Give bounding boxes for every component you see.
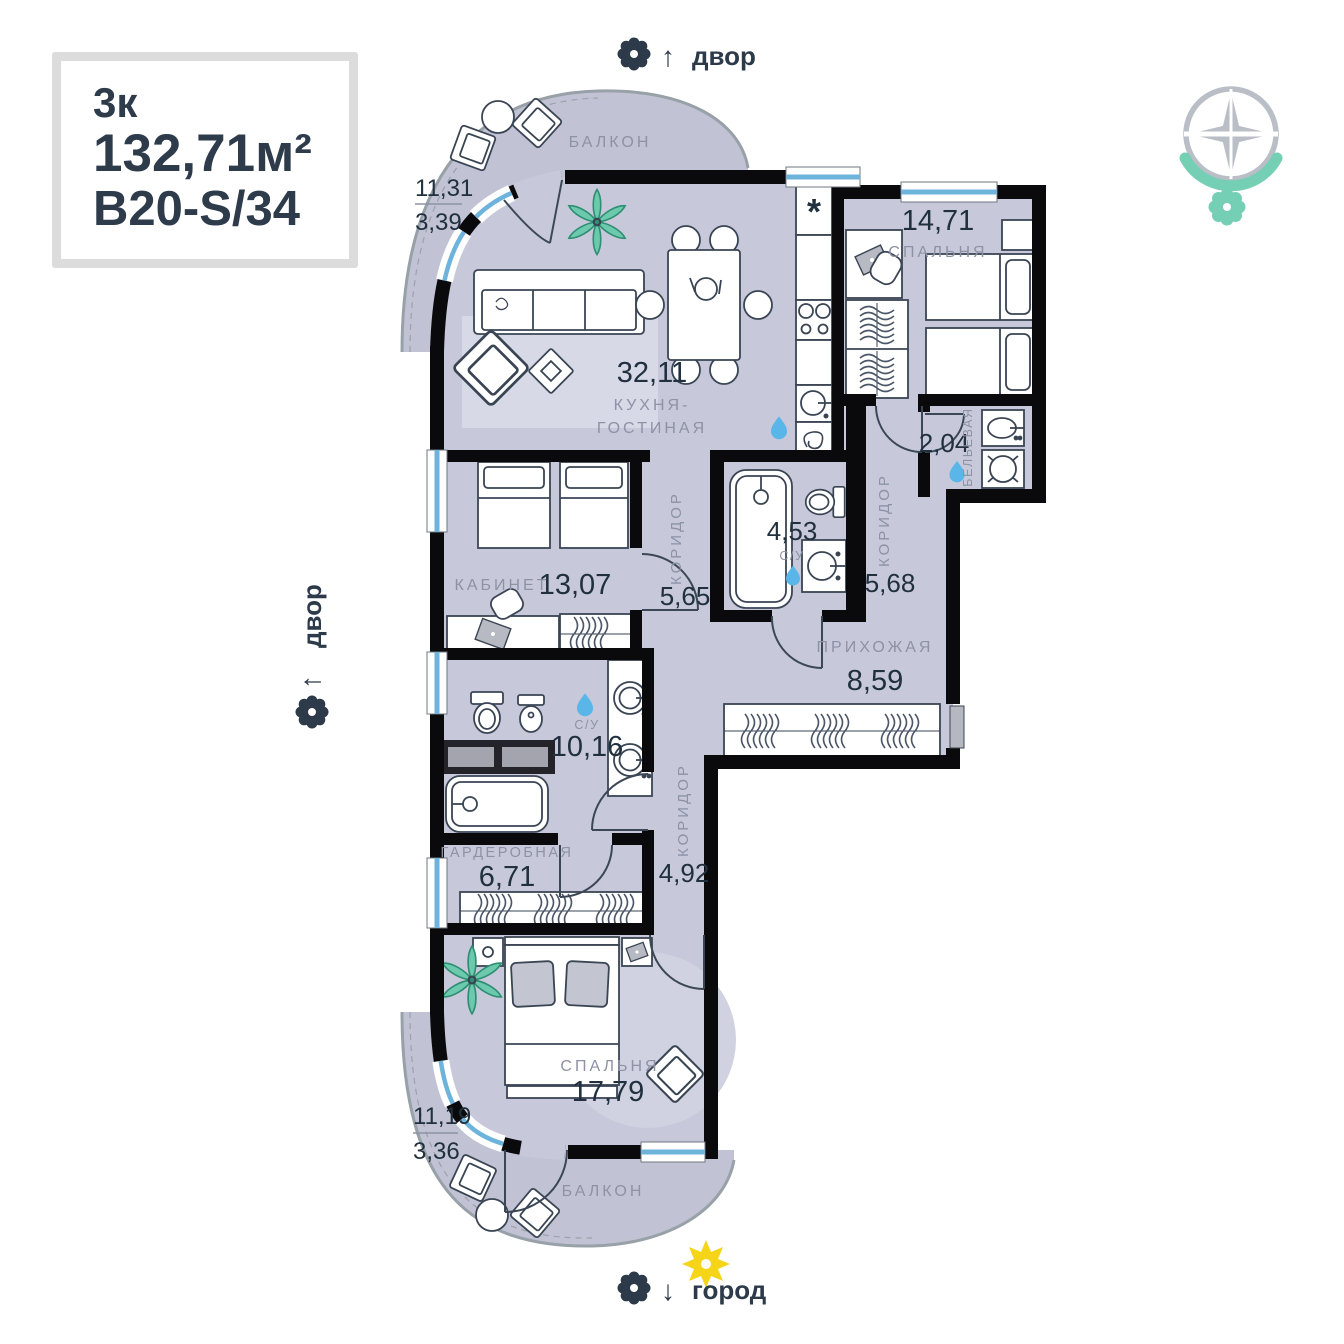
arrow-left-icon: ↑	[295, 675, 326, 689]
courtyard-label: двор	[297, 584, 327, 648]
balcony-top-name: БАЛКОН	[569, 134, 652, 151]
orientation-marker-left: ↑ двор	[295, 584, 329, 728]
orientation-marker-top: ↑ двор	[618, 38, 756, 73]
corridor2-name: КОРИДОР	[876, 473, 893, 567]
rose-icon	[296, 696, 329, 729]
courtyard-label: двор	[692, 41, 756, 71]
stove-icon	[796, 300, 832, 340]
bathtub-icon	[446, 776, 548, 832]
corridor1-name: КОРИДОР	[668, 491, 685, 585]
compass-flower-icon	[1209, 189, 1246, 226]
office-name: КАБИНЕТ	[455, 577, 550, 594]
arrow-down-icon: ↓	[661, 1275, 675, 1306]
bathroom1-area: 4,53	[767, 516, 818, 546]
hallway-rack	[724, 704, 940, 758]
orientation-marker-bottom: ↓ город	[618, 1240, 767, 1306]
corridor3-area: 4,92	[659, 858, 710, 888]
wardrobe-area: 6,71	[479, 861, 535, 893]
kitchen-sink-icon	[796, 385, 832, 422]
floor-plan-svg: * 11,31 3,39 БАЛКОН 32,11 КУХНЯ- ГОСТИНА…	[0, 0, 1344, 1344]
entrance-door	[950, 706, 964, 748]
hallway-area: 8,59	[847, 665, 903, 697]
bathroom1-name: С/У	[779, 549, 804, 563]
toilet-icon	[471, 692, 503, 733]
linen-name: БЕЛЬЕВАЯ	[961, 407, 975, 486]
bedroom1-area: 14,71	[902, 205, 975, 237]
wardrobe-name: ГАРДЕРОБНАЯ	[440, 845, 573, 861]
corridor1-area: 5,65	[660, 581, 711, 611]
balcony-bottom-area-total: 11,19	[413, 1103, 471, 1130]
balcony-bottom-name: БАЛКОН	[562, 1183, 645, 1200]
bathroom2-name: С/У	[574, 718, 599, 732]
linen-sink-icon	[982, 410, 1024, 446]
floor-plan-page: 3к 132,71м² В20-S/34	[0, 0, 1344, 1344]
toilet-icon	[806, 487, 845, 517]
bidet-icon	[518, 695, 544, 732]
compass-icon	[1184, 89, 1278, 226]
arrow-up-icon: ↑	[661, 41, 675, 72]
bathroom2-area: 10,16	[551, 731, 624, 763]
sofa	[474, 270, 644, 334]
rose-icon	[618, 1272, 651, 1305]
rose-icon	[618, 38, 651, 71]
balcony-bottom-area-reduced: 3,36	[413, 1138, 460, 1165]
bedroom2-area: 17,79	[572, 1076, 645, 1108]
balcony-top-area-reduced: 3,39	[415, 209, 462, 236]
hallway-name: ПРИХОЖАЯ	[817, 639, 934, 656]
bedroom2-name: СПАЛЬНЯ	[560, 1058, 659, 1075]
bathroom1-sink-icon	[802, 540, 846, 592]
kitchen-name-1: КУХНЯ-	[614, 397, 691, 414]
city-label: город	[692, 1275, 767, 1305]
fridge-icon: *	[807, 191, 821, 232]
bedroom1-name: СПАЛЬНЯ	[888, 244, 987, 261]
kitchen-area: 32,11	[617, 357, 687, 389]
balcony-top-area-total: 11,31	[415, 175, 473, 202]
corridor2-area: 5,68	[865, 568, 916, 598]
bedroom1-closet	[846, 300, 908, 398]
washing-machine-icon	[982, 450, 1024, 488]
corridor3-name: КОРИДОР	[675, 763, 692, 857]
office-area: 13,07	[539, 569, 612, 601]
kitchen-name-2: ГОСТИНАЯ	[597, 420, 707, 437]
